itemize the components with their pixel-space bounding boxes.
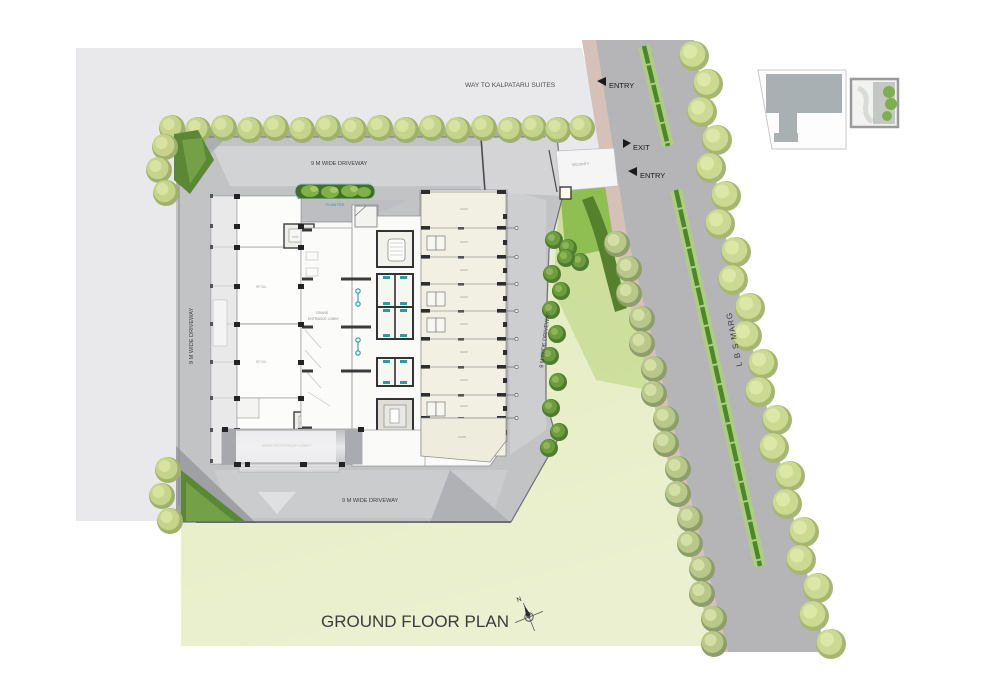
svg-text:WAY TO KALPATARU SUITES: WAY TO KALPATARU SUITES: [465, 82, 556, 89]
svg-text:EXIT: EXIT: [633, 143, 650, 152]
svg-text:9 M WIDE DRIVEWAY: 9 M WIDE DRIVEWAY: [311, 161, 368, 167]
svg-text:9 M WIDE DRIVEWAY: 9 M WIDE DRIVEWAY: [342, 498, 399, 504]
svg-text:SHOP: SHOP: [460, 295, 468, 299]
svg-text:ENTRY: ENTRY: [640, 171, 665, 180]
svg-text:SHOP: SHOP: [460, 322, 468, 326]
svg-text:SHOP: SHOP: [460, 240, 468, 244]
svg-text:9 M WIDE DRIVEWAY: 9 M WIDE DRIVEWAY: [189, 307, 195, 364]
svg-text:MAIN ENTRANCE LOBBY: MAIN ENTRANCE LOBBY: [262, 443, 312, 448]
svg-text:GROUND FLOOR PLAN: GROUND FLOOR PLAN: [321, 612, 509, 631]
svg-text:ENTRANCE LOBBY: ENTRANCE LOBBY: [308, 317, 340, 321]
svg-text:RETAIL: RETAIL: [256, 360, 267, 364]
svg-text:SHOP: SHOP: [460, 207, 468, 211]
svg-text:RETAIL: RETAIL: [256, 285, 267, 289]
svg-text:PLANTER: PLANTER: [326, 202, 345, 207]
svg-text:SHOP: SHOP: [460, 378, 468, 382]
svg-text:SHOP: SHOP: [460, 404, 468, 408]
svg-text:SHOP: SHOP: [460, 268, 468, 272]
svg-text:SHOP: SHOP: [458, 435, 466, 439]
svg-text:ENTRY: ENTRY: [609, 81, 634, 90]
svg-text:MTR: MTR: [292, 235, 299, 239]
svg-text:GRAND: GRAND: [316, 311, 329, 315]
svg-text:SHOP: SHOP: [460, 350, 468, 354]
